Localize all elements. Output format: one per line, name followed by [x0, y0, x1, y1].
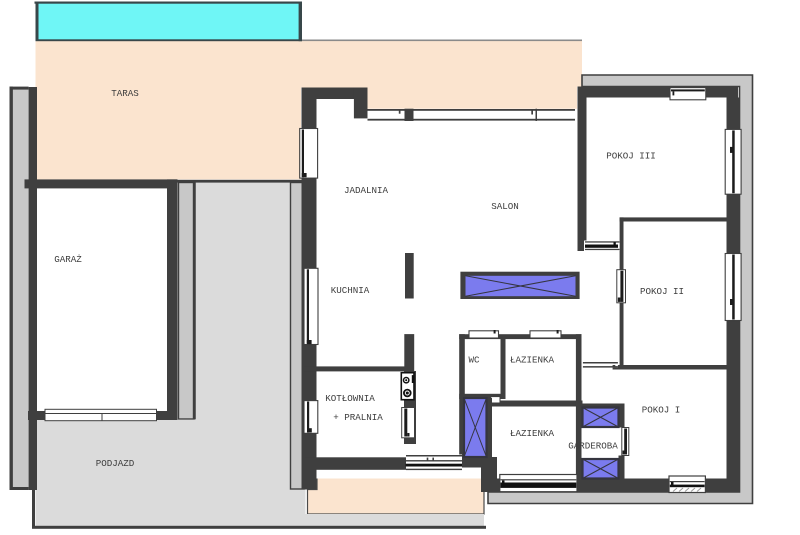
svg-text:GARAŻ: GARAŻ: [54, 254, 82, 265]
svg-text:+ PRALNIA: + PRALNIA: [333, 412, 383, 423]
svg-text:GARDEROBA: GARDEROBA: [568, 441, 618, 452]
svg-text:JADALNIA: JADALNIA: [344, 185, 389, 196]
svg-text:PODJAZD: PODJAZD: [96, 458, 135, 469]
svg-text:KUCHNIA: KUCHNIA: [331, 285, 370, 296]
svg-text:ŁAZIENKA: ŁAZIENKA: [510, 355, 555, 366]
svg-text:POKOJ III: POKOJ III: [606, 151, 656, 162]
svg-text:ŁAZIENKA: ŁAZIENKA: [510, 428, 555, 439]
svg-text:TARAS: TARAS: [111, 88, 139, 99]
svg-text:POKOJ II: POKOJ II: [640, 286, 684, 297]
svg-text:SALON: SALON: [491, 201, 519, 212]
svg-text:WC: WC: [468, 355, 480, 366]
svg-text:POKOJ I: POKOJ I: [642, 405, 681, 416]
svg-text:KOTŁOWNIA: KOTŁOWNIA: [325, 393, 375, 404]
